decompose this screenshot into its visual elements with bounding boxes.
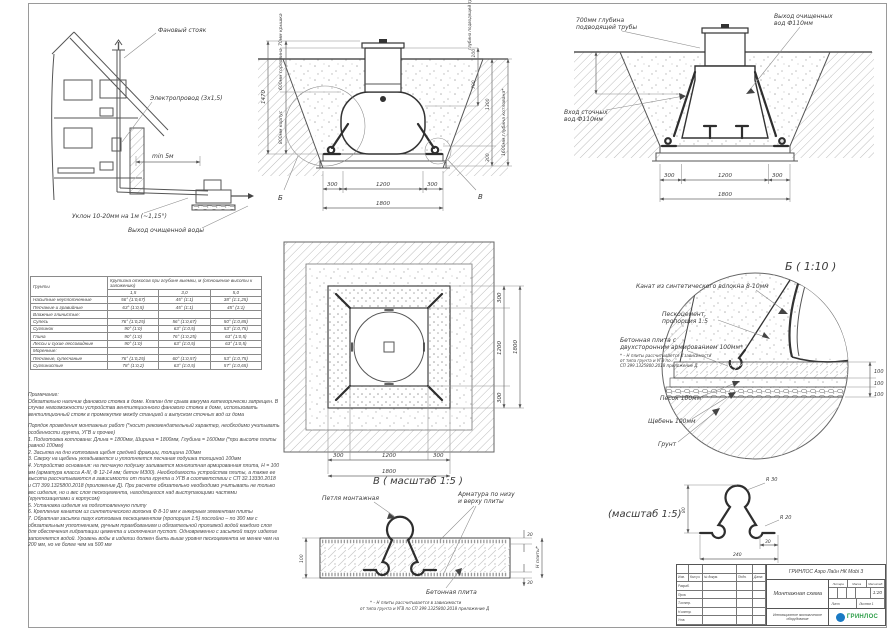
svg-text:30: 30 [527,580,533,586]
svg-text:80: 80 [681,507,687,513]
svg-text:1600мм глубина котлована*: 1600мм глубина котлована* [501,88,507,156]
rebar-dims: R 30 R 20 80 30 240 [681,477,791,563]
table-row: Влажные глинистые: [31,311,262,318]
svg-text:вод Ф110мм: вод Ф110мм [774,20,813,27]
table-row: Глина90° (1:0)76° (1:0,25)63° (1:0,5) [31,333,262,340]
table-row: Лессы и сухие лессовидные90° (1:0)63° (1… [31,340,262,347]
table-row: Суглинистые78° (1:0,2)63° (1:0,5)57° (1:… [31,362,262,369]
stamp-mini-header: Литера Масса Масштаб [829,580,885,588]
svg-text:вод Ф110мм: вод Ф110мм [564,116,603,123]
svg-text:R 20: R 20 [780,515,791,521]
detail-v-title: В ( масштаб 1:5 ) [373,475,463,487]
svg-text:Арматура по низу: Арматура по низу [457,491,515,498]
main-cross-section: Б В 300 1200 300 1800 70мм крышка 600мм … [228,6,538,234]
svg-text:от типа грунта и УГВ по СП 399: от типа грунта и УГВ по СП 399.1325800.2… [360,606,489,611]
svg-text:100: 100 [471,49,477,58]
plan-view: 300 1200 300 1800 300 1200 300 1800 [272,232,534,482]
tank-body [341,39,425,154]
svg-text:100: 100 [874,392,884,398]
sig-row: Утв. [677,616,766,625]
notes-title: Примечание: [28,392,280,399]
svg-text:Бетонная плита: Бетонная плита [426,589,477,596]
col-soil-header: Грунты [31,277,108,297]
svg-text:300: 300 [485,153,491,162]
svg-text:300: 300 [433,453,444,459]
svg-text:Н плиты*: Н плиты* [535,545,541,568]
svg-text:Вход сточных: Вход сточных [564,109,608,116]
sig-row: Н.контр. [677,608,766,617]
house-section-drawing: min 5м Фановый стояк Электропровод (3х1,… [40,10,245,235]
rebar-loop-detail: (масштаб 1:5) R 30 R 20 80 30 240 [600,455,810,565]
svg-text:30: 30 [765,539,771,545]
logo-text: ГРИНЛОС [847,614,878,620]
svg-text:двухсторонним армированием 100: двухсторонним армированием 100мм* [619,344,743,351]
product-name: ГРИНЛОС Аэро Лайн НК Mobi 3 [767,565,885,580]
house-dim-5m: min 5м [136,153,200,166]
svg-text:300: 300 [427,182,438,188]
soils-slope-table: Грунты Крутизна откосов при глубине выем… [30,276,262,370]
svg-text:СП 399.1325800.2018 приложение: СП 399.1325800.2018 приложение Д [620,363,697,368]
drawing-sheet: min 5м Фановый стояк Электропровод (3х1,… [0,0,893,632]
svg-text:1200: 1200 [382,453,396,459]
svg-text:700мм глубина: 700мм глубина [576,17,624,24]
table-row: Моренные: [31,347,262,354]
svg-text:R 30: R 30 [766,477,777,483]
detail-v: В ( масштаб 1:5 ) 100 30 30 Н плиты* Пет… [278,470,563,615]
sheet-count-label: Листов 1 [857,599,885,608]
detail-b-title: Б ( 1:10 ) [785,260,836,273]
order-title: Порядок проведения монтажных работ (*нос… [28,423,280,436]
note-item: 5. Установка изделия на подготовленную п… [28,503,280,510]
svg-text:1200: 1200 [497,341,503,355]
sig-row: Разраб. [677,582,766,591]
svg-text:800мм корпус: 800мм корпус [278,110,284,144]
svg-text:300: 300 [497,392,503,403]
company-logo: ГРИНЛОС [829,609,885,625]
svg-text:1800: 1800 [513,340,519,354]
svg-text:Бетонная плита с: Бетонная плита с [620,337,677,344]
svg-text:1200: 1200 [376,182,390,188]
svg-text:Выход очищенных: Выход очищенных [774,13,833,20]
table-row: Песчаные, супесчаные76° (1:0,25)60° (1:0… [31,355,262,362]
distance-label: min 5м [152,153,174,160]
note-item: 6. Крепление канатом из синтетического в… [28,509,280,516]
svg-text:300: 300 [772,173,783,179]
note-item: 4. Устройство основания: на песчаную под… [28,463,280,503]
bottom-dims: 300 1200 300 1800 [660,164,790,202]
svg-text:600мм горловина: 600мм горловина [278,48,284,90]
note-item: 7. Обратная засыпка пазух котлована песк… [28,516,280,549]
note-item: 1. Подготовка котлована: Длина = 1800мм,… [28,437,280,450]
rope-label: Канат из синтетического волокна 8-10мм [636,283,769,290]
svg-text:1470: 1470 [261,90,267,104]
detail-b: Б ( 1:10 ) 100 100 100 Канат из си [540,238,890,468]
svg-text:300: 300 [497,292,503,303]
svg-text:100: 100 [874,381,884,387]
svg-text:240: 240 [733,552,742,558]
svg-text:Б: Б [278,194,283,202]
sig-header-row: Изм. Кол.уч. № докум. Подп. Дата [677,574,766,583]
svg-text:300: 300 [327,182,338,188]
svg-text:1300: 1300 [485,98,491,110]
rebar-title: (масштаб 1:5) [608,508,682,520]
svg-text:Щебень 100мм: Щебень 100мм [648,418,696,425]
svg-text:1800: 1800 [718,192,732,198]
svg-text:100: 100 [874,369,884,375]
logo-globe-icon [836,613,845,622]
svg-text:1200: 1200 [718,173,732,179]
table-row: Суглинок90° (1:0)63° (1:0,5)53° (1:0,75) [31,325,262,332]
svg-text:1800: 1800 [376,201,390,207]
svg-text:100: 100 [299,554,305,563]
scale-value: 1:20 [871,588,885,598]
col-group-header: Крутизна откосов при глубине выемки, м (… [108,277,262,290]
svg-text:300: 300 [664,173,675,179]
right-cross-section: 700мм глубина подводящей трубы Выход очи… [562,6,888,224]
svg-text:Пескоцемент,: Пескоцемент, [662,311,706,318]
sig-row: Пров. [677,591,766,600]
slope-label: Уклон 10-20мм на 1м (~1,15°) [72,213,167,220]
bottom-dims: 300 1200 300 1800 [323,171,443,211]
table-row: Песчаные и гравийные63° (1:0,5)45° (1:1)… [31,304,262,311]
table-row: Насыпные неуплотненные56° (1:0,67)45° (1… [31,296,262,303]
svg-text:* – Н плиты рассчитывается в з: * – Н плиты рассчитывается в зависимости [370,600,462,605]
sig-row: Т.контр. [677,599,766,608]
sheet-number-label: Лист [829,599,857,608]
document-name: Монтажная схема [767,580,829,608]
clean-water-outlet-label: Выход очищенной воды [128,227,204,234]
title-block-signatures: Изм. Кол.уч. № докум. Подп. Дата Разраб.… [677,565,767,625]
notes-paragraph: Обязательно наличие фанового стояка в до… [28,399,280,419]
vent-stack-label: Фановый стояк [158,27,207,34]
svg-text:300: 300 [333,453,344,459]
svg-text:30: 30 [527,532,533,538]
svg-text:пропорция 1:5: пропорция 1:5 [662,318,708,325]
center-square [384,342,394,352]
cable-label: Электропровод (3х1,5) [149,95,223,102]
svg-text:и верху плиты: и верху плиты [458,498,504,505]
company-tagline: Инновационное экологическое оборудование [767,609,829,625]
notes-block: Примечание: Обязательно наличие фанового… [28,392,280,549]
svg-text:700: 700 [471,80,477,89]
svg-text:Песок 100мм: Песок 100мм [660,395,702,402]
svg-text:Грунт: Грунт [658,441,677,448]
svg-text:глубина подводящей трубы: глубина подводящей трубы [467,0,472,50]
table-row: Супесь76° (1:0,25)56° (1:0,67)50° (1:0,8… [31,318,262,325]
svg-text:В: В [478,193,483,201]
base-layers [652,146,798,161]
svg-text:подводящей трубы: подводящей трубы [576,24,637,31]
loop-shape [700,486,775,538]
svg-text:Петля монтажная: Петля монтажная [322,495,379,502]
title-block: Изм. Кол.уч. № докум. Подп. Дата Разраб.… [676,564,886,626]
svg-text:70мм крышка: 70мм крышка [278,13,284,46]
